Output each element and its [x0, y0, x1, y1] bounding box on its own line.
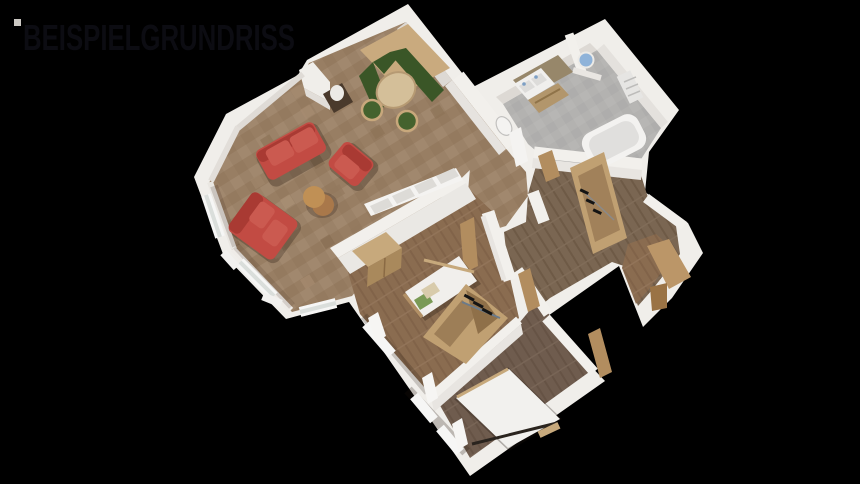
svg-text:BEISPIELGRUNDRISS: BEISPIELGRUNDRISS	[23, 17, 295, 58]
